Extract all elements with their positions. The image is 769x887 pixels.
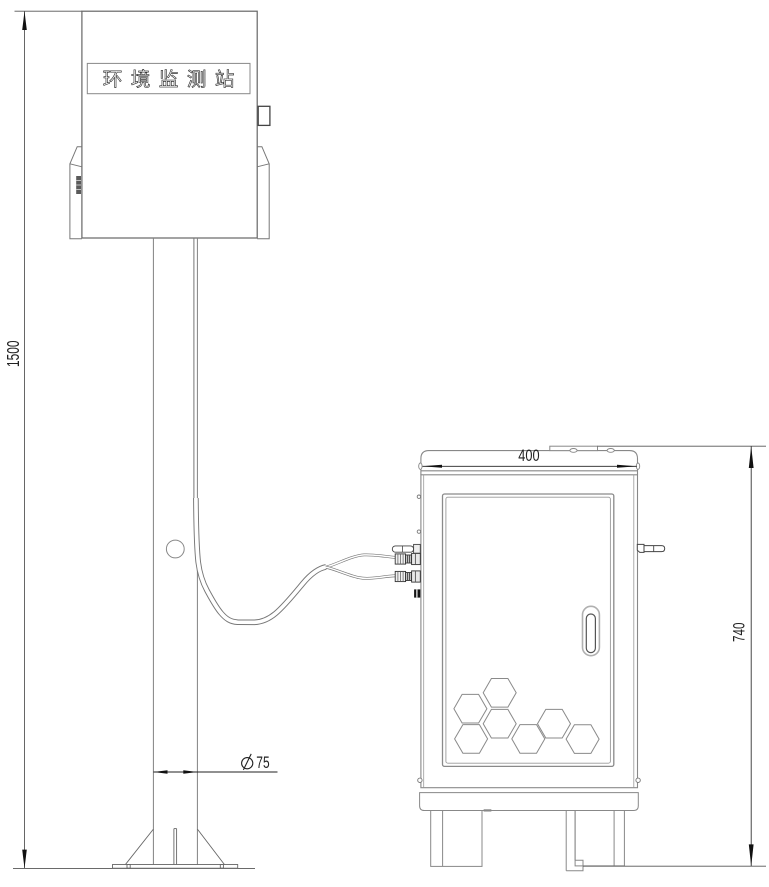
svg-text:75: 75 <box>256 753 269 772</box>
svg-text:1500: 1500 <box>3 340 23 367</box>
svg-text:400: 400 <box>518 447 539 465</box>
svg-text:740: 740 <box>730 623 748 643</box>
